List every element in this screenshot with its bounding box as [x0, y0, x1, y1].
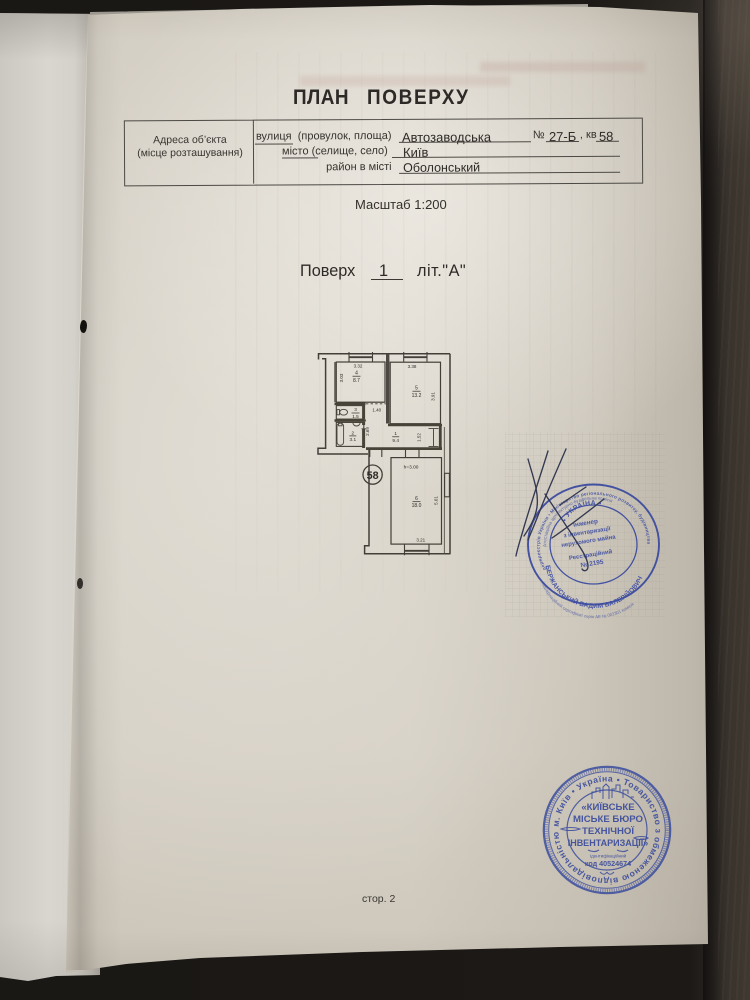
- svg-text:6: 6: [415, 496, 418, 502]
- svg-text:3: 3: [354, 407, 357, 412]
- svg-text:8.7: 8.7: [353, 378, 360, 384]
- svg-text:ІНВЕНТАРИЗАЦІЇ»: ІНВЕНТАРИЗАЦІЇ»: [568, 838, 649, 848]
- svg-text:3.38: 3.38: [408, 364, 417, 369]
- svg-text:18.0: 18.0: [412, 503, 422, 509]
- svg-text:3.1: 3.1: [350, 437, 357, 442]
- svg-text:2: 2: [351, 430, 354, 435]
- svg-text:13.2: 13.2: [412, 393, 422, 399]
- svg-text:58: 58: [367, 470, 379, 482]
- svg-text:ТЕХНІЧНОЇ: ТЕХНІЧНОЇ: [582, 826, 634, 837]
- svg-text:Ідентифікаційний: Ідентифікаційний: [590, 853, 627, 859]
- svg-text:«КИЇВСЬКЕ: «КИЇВСЬКЕ: [581, 802, 635, 813]
- svg-text:3.03: 3.03: [339, 373, 344, 382]
- svg-text:3.32: 3.32: [354, 364, 363, 369]
- svg-text:1.52: 1.52: [416, 433, 421, 442]
- svg-text:1: 1: [394, 431, 397, 436]
- svg-text:1.5: 1.5: [352, 414, 359, 419]
- svg-text:3.21: 3.21: [416, 538, 425, 543]
- svg-text:5.61: 5.61: [433, 496, 438, 505]
- svg-text:5: 5: [415, 386, 418, 392]
- svg-text:3.91: 3.91: [431, 392, 436, 401]
- svg-text:h=3.00: h=3.00: [404, 464, 419, 470]
- svg-text:2.69: 2.69: [365, 427, 370, 436]
- svg-text:№ 2195: № 2195: [580, 559, 604, 570]
- svg-text:код 40524674: код 40524674: [585, 859, 631, 868]
- svg-text:1.40: 1.40: [372, 407, 381, 412]
- svg-text:4: 4: [355, 371, 358, 377]
- svg-text:МІСЬКЕ БЮРО: МІСЬКЕ БЮРО: [573, 814, 643, 825]
- svg-text:9.4: 9.4: [392, 438, 399, 443]
